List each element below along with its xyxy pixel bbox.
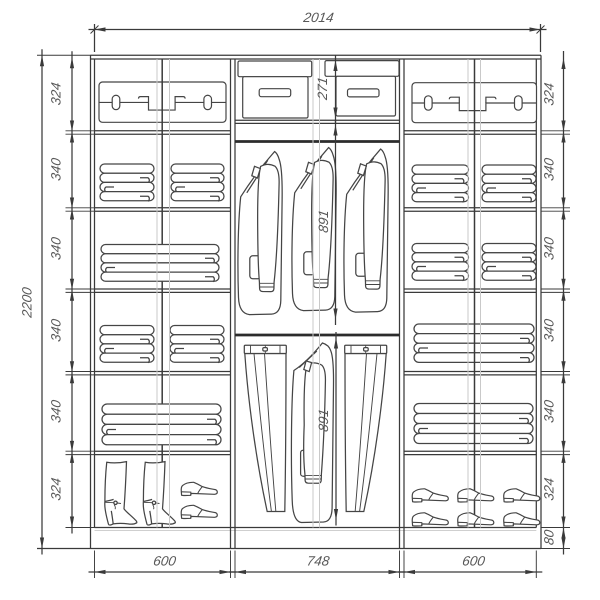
svg-text:891: 891 bbox=[316, 209, 331, 234]
svg-text:324: 324 bbox=[49, 81, 64, 106]
svg-text:340: 340 bbox=[542, 399, 557, 424]
svg-text:324: 324 bbox=[49, 476, 64, 501]
svg-text:340: 340 bbox=[49, 318, 64, 343]
svg-text:891: 891 bbox=[316, 408, 331, 433]
svg-text:324: 324 bbox=[542, 476, 557, 501]
svg-text:340: 340 bbox=[49, 236, 64, 261]
svg-text:748: 748 bbox=[306, 554, 331, 569]
svg-text:324: 324 bbox=[542, 81, 557, 106]
svg-text:2200: 2200 bbox=[20, 286, 35, 320]
svg-text:340: 340 bbox=[542, 236, 557, 261]
svg-text:340: 340 bbox=[542, 157, 557, 182]
svg-text:600: 600 bbox=[152, 554, 177, 569]
svg-text:271: 271 bbox=[315, 76, 330, 102]
svg-text:340: 340 bbox=[49, 399, 64, 424]
svg-text:2014: 2014 bbox=[302, 10, 336, 25]
svg-text:600: 600 bbox=[461, 554, 486, 569]
svg-text:340: 340 bbox=[542, 318, 557, 343]
svg-text:80: 80 bbox=[542, 528, 557, 546]
svg-text:340: 340 bbox=[49, 157, 64, 182]
